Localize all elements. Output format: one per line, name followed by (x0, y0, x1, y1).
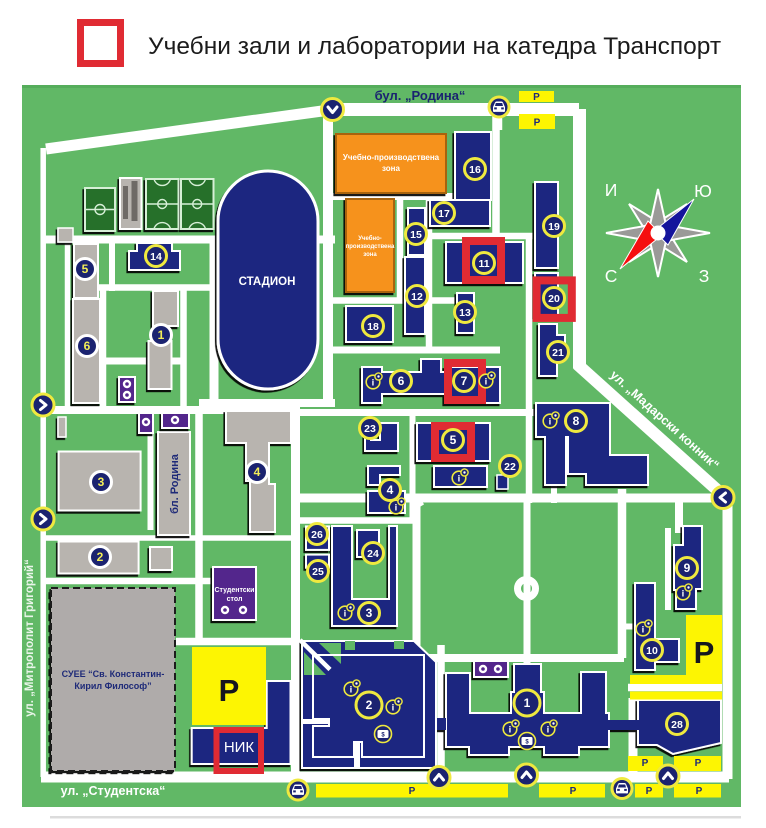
svg-text:Учебни зали и лаборатории на к: Учебни зали и лаборатории на катедра Тра… (148, 33, 721, 60)
svg-text:i: i (509, 725, 512, 736)
svg-text:бл. Родина: бл. Родина (169, 453, 181, 514)
svg-text:21: 21 (552, 347, 564, 359)
svg-text:25: 25 (312, 566, 324, 578)
svg-text:Студентски: Студентски (215, 587, 255, 594)
svg-text:i: i (549, 417, 552, 428)
svg-text:10: 10 (646, 645, 658, 657)
svg-text:6: 6 (84, 339, 91, 353)
svg-text:3: 3 (98, 475, 105, 489)
svg-text:Р: Р (694, 635, 715, 670)
svg-text:1: 1 (524, 696, 531, 710)
svg-text:4: 4 (254, 465, 261, 479)
svg-text:13: 13 (459, 307, 471, 319)
svg-text:14: 14 (150, 251, 162, 263)
svg-text:Р: Р (219, 673, 240, 708)
svg-text:24: 24 (367, 548, 379, 560)
svg-text:Кирил Философ”: Кирил Философ” (74, 681, 151, 691)
svg-text:2: 2 (97, 550, 104, 564)
svg-text:i: i (344, 609, 347, 620)
svg-text:i: i (642, 625, 645, 636)
svg-text:производствена: производствена (346, 244, 395, 250)
svg-text:Ю: Ю (694, 181, 712, 201)
svg-text:28: 28 (671, 719, 683, 731)
svg-text:Р: Р (409, 786, 416, 797)
svg-text:15: 15 (410, 229, 422, 241)
svg-text:23: 23 (364, 423, 376, 435)
svg-text:бул. „Родина“: бул. „Родина“ (375, 88, 466, 103)
svg-text:5: 5 (450, 433, 457, 447)
svg-text:зона: зона (363, 252, 377, 258)
svg-text:Р: Р (534, 118, 541, 129)
svg-text:26: 26 (311, 529, 323, 541)
svg-text:1: 1 (158, 328, 165, 342)
svg-text:17: 17 (438, 208, 450, 220)
svg-text:стол: стол (227, 596, 243, 603)
svg-text:i: i (682, 589, 685, 600)
svg-text:Р: Р (646, 786, 653, 797)
svg-text:И: И (605, 180, 618, 200)
svg-text:ул. „Студентска“: ул. „Студентска“ (61, 784, 166, 798)
svg-text:НИК: НИК (224, 739, 255, 756)
svg-text:i: i (372, 378, 375, 389)
svg-text:З: З (699, 266, 710, 286)
svg-text:Р: Р (642, 758, 649, 769)
svg-text:4: 4 (387, 483, 394, 497)
svg-text:12: 12 (411, 291, 423, 303)
svg-text:Р: Р (570, 786, 577, 797)
svg-text:i: i (392, 703, 395, 714)
svg-text:8: 8 (573, 414, 580, 428)
svg-text:Р: Р (696, 786, 703, 797)
svg-text:22: 22 (504, 461, 516, 473)
svg-text:Р: Р (695, 758, 702, 769)
svg-text:С: С (605, 266, 618, 286)
svg-text:9: 9 (684, 561, 691, 575)
svg-text:2: 2 (366, 698, 373, 712)
svg-text:16: 16 (469, 164, 481, 176)
svg-text:5: 5 (82, 262, 89, 276)
svg-text:зона: зона (382, 164, 400, 173)
svg-text:i: i (350, 685, 353, 696)
svg-text:20: 20 (548, 293, 560, 305)
svg-text:Учебно-: Учебно- (358, 235, 381, 242)
svg-text:i: i (458, 474, 461, 485)
svg-text:7: 7 (461, 374, 468, 388)
svg-text:Р: Р (533, 92, 540, 103)
svg-text:19: 19 (548, 221, 560, 233)
svg-text:СУЕЕ “Св. Константин-: СУЕЕ “Св. Константин- (62, 669, 165, 679)
svg-text:6: 6 (398, 374, 405, 388)
svg-text:ул. „Митрополит Григорий“: ул. „Митрополит Григорий“ (24, 559, 36, 717)
svg-text:i: i (395, 503, 398, 514)
svg-text:i: i (485, 377, 488, 388)
svg-text:i: i (547, 725, 550, 736)
svg-text:18: 18 (367, 321, 379, 333)
svg-text:СТАДИОН: СТАДИОН (239, 276, 296, 288)
svg-text:11: 11 (478, 258, 489, 270)
svg-text:3: 3 (366, 606, 373, 620)
svg-text:Учебно-производствена: Учебно-производствена (343, 153, 440, 162)
